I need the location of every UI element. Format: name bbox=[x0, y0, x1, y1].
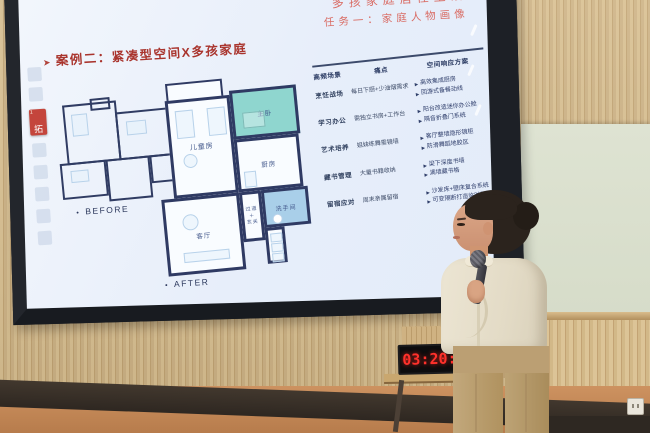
room-living: 客厅 bbox=[161, 192, 246, 276]
hairline bbox=[465, 194, 517, 220]
title-arrow-icon: ➤ bbox=[43, 57, 53, 68]
col-header-scene: 高频场景 bbox=[313, 68, 350, 82]
pants-crease bbox=[525, 374, 527, 432]
solutions-cell: ▶高效集成厨房 ▶回游式备餐动线 bbox=[414, 72, 486, 99]
hand bbox=[467, 280, 485, 303]
pain-cell: 姐妹练舞需镜墙 bbox=[356, 134, 421, 150]
scene-cell: 藏书管理 bbox=[323, 168, 360, 182]
toolbar-icon[interactable] bbox=[35, 187, 50, 202]
room-kitchen: 厨房 bbox=[234, 133, 304, 192]
room-master: 主卧 bbox=[229, 84, 300, 139]
lips bbox=[453, 236, 460, 239]
toolbar-icon[interactable] bbox=[37, 231, 52, 246]
pain-cell: 每日下厨+少油烟需求 bbox=[351, 80, 416, 96]
before-label: •BEFORE bbox=[76, 204, 129, 217]
slide-title: ➤案例二：紧凑型空间X多孩家庭 bbox=[42, 38, 248, 70]
solutions-cell: ▶客厅整墙隐形镜柜 ▶防滑舞蹈地胶区 bbox=[420, 127, 492, 154]
col-header-pain: 痛点 bbox=[349, 61, 414, 78]
toolbar-icon[interactable] bbox=[27, 67, 42, 82]
triangle-bullet-icon: ▶ bbox=[423, 162, 427, 171]
pants-crease bbox=[475, 374, 477, 432]
toolbar-icon[interactable] bbox=[32, 143, 47, 158]
room-bath: 洗手间 bbox=[261, 186, 311, 228]
solutions-cell: ▶梁下深度书墙 ▶满墙藏书格 bbox=[423, 154, 495, 181]
toolbar-icon[interactable] bbox=[28, 87, 43, 102]
ear bbox=[483, 222, 493, 235]
scene-cell: 学习办公 bbox=[318, 114, 355, 128]
toolbar-icon[interactable] bbox=[36, 209, 51, 224]
eye bbox=[457, 223, 465, 226]
triangle-bullet-icon: ▶ bbox=[417, 108, 421, 117]
room-kids: 儿童房 bbox=[165, 95, 239, 199]
triangle-bullet-icon: ▶ bbox=[421, 144, 425, 153]
pants-left-leg bbox=[453, 373, 503, 433]
toolbar-icon[interactable] bbox=[33, 165, 48, 180]
cabinet-strip bbox=[264, 226, 287, 264]
sidebar-expand-tag[interactable]: 1 拓 bbox=[29, 109, 48, 136]
pain-cell: 大量书籍收纳 bbox=[359, 161, 424, 177]
scene-cell: 烹饪战场 bbox=[315, 87, 352, 101]
room-hallway: 过道 ＋ 玄关 bbox=[239, 190, 266, 242]
scene-cell: 艺术培养 bbox=[321, 141, 358, 155]
floorplan-after: 儿童房 主卧 厨房 洗手间 bbox=[116, 62, 342, 299]
classroom-photo: 多孩家庭居住生活 任务一：家庭人物画像 ➤案例二：紧凑型空间X多孩家庭 1 拓 bbox=[0, 0, 650, 433]
pain-cell: 需独立书房+工作台 bbox=[354, 107, 419, 123]
power-outlet bbox=[627, 398, 644, 415]
triangle-bullet-icon: ▶ bbox=[420, 135, 424, 144]
microphone-head bbox=[470, 250, 486, 268]
triangle-bullet-icon: ▶ bbox=[415, 90, 419, 99]
tag-badge: 1 bbox=[30, 110, 33, 116]
triangle-bullet-icon: ▶ bbox=[414, 81, 418, 90]
triangle-bullet-icon: ▶ bbox=[418, 117, 422, 126]
pants-right-leg bbox=[505, 373, 549, 433]
presenter-woman bbox=[413, 178, 555, 433]
scene-cell: 留宿应对 bbox=[326, 195, 363, 209]
